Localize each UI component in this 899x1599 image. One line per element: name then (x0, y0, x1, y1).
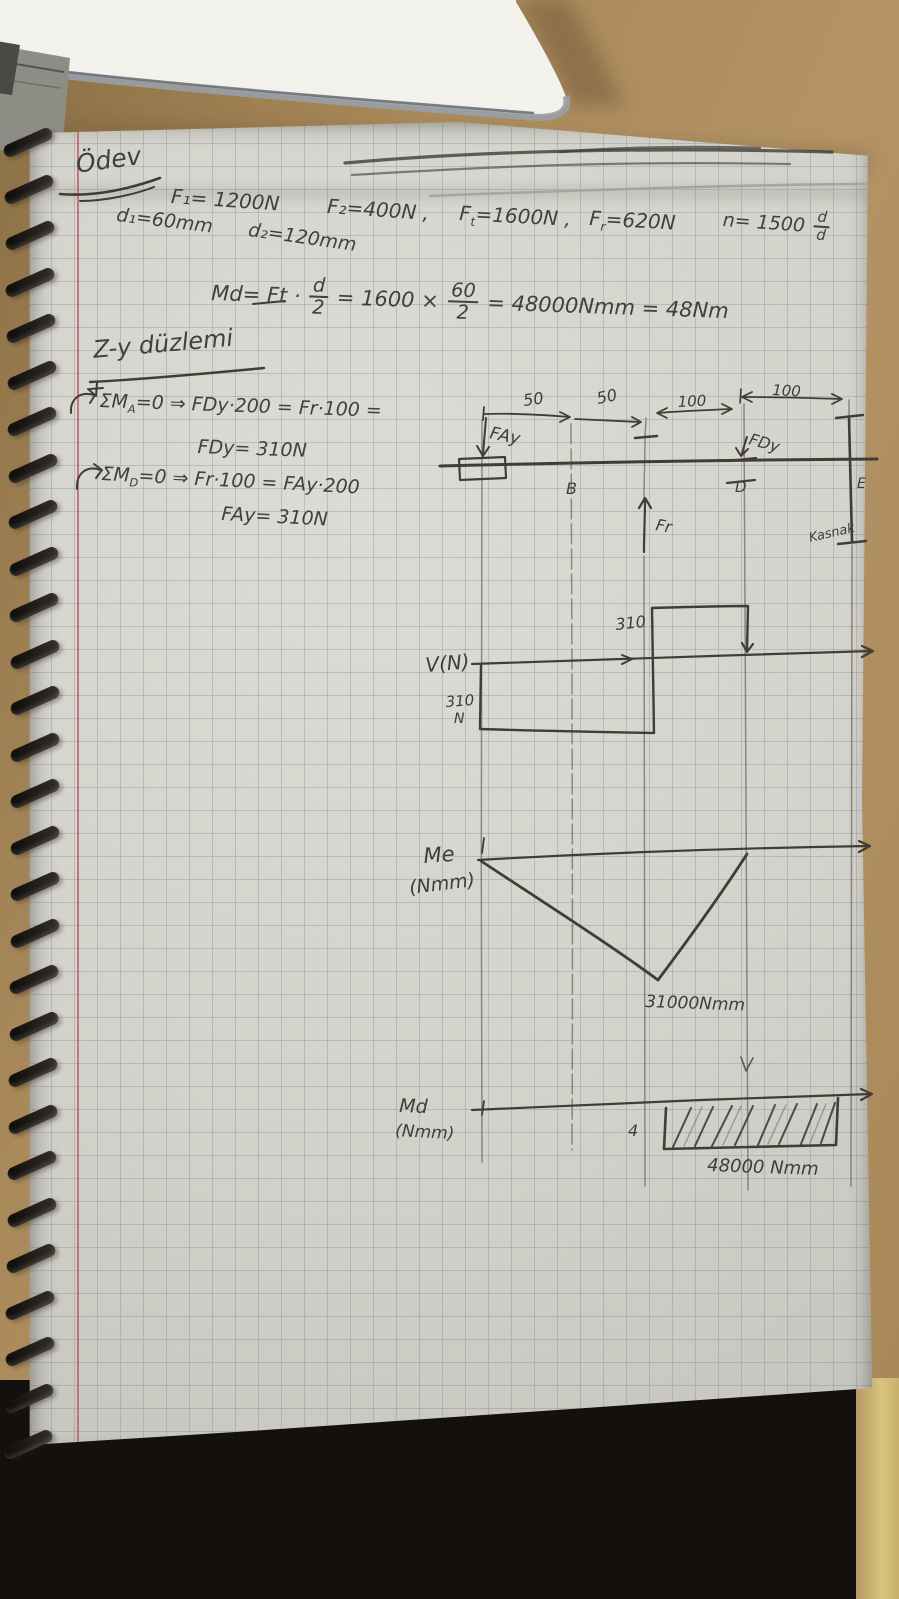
me-triangle (481, 854, 747, 980)
torque-block (664, 1098, 838, 1149)
fr-label: Fr (654, 515, 674, 537)
moment-a-result: FDy= 310N (197, 436, 307, 462)
point-d-label: D (735, 478, 747, 496)
fdy-label: FDy (747, 430, 783, 457)
md-axis (472, 1094, 871, 1110)
dim-50-1: 50 (522, 388, 545, 410)
fay-arrow (483, 418, 486, 454)
md-axis-unit: (Nmm) (395, 1121, 455, 1144)
point-e-label: E (857, 476, 866, 492)
given-fr: Fr=620N (589, 206, 677, 237)
v-axis-label: V(N) (424, 649, 470, 677)
moment-sense-symbol-a (71, 383, 103, 413)
point-b-label: B (566, 479, 577, 498)
dim-line-2 (575, 419, 640, 422)
fr-arrow (644, 500, 645, 552)
me-axis-label: Me (423, 842, 456, 868)
me-peak-label: 31000Nmm (645, 992, 746, 1015)
dim-100-1: 100 (677, 392, 707, 411)
me-axis-unit: (Nmm) (408, 869, 476, 899)
shear-diagram (472, 606, 873, 733)
section-underline (90, 368, 264, 382)
given-ft: Ft=1600N , (459, 201, 572, 234)
dim-50-2: 50 (595, 385, 619, 408)
c-tick (635, 436, 657, 438)
me-axis (478, 846, 869, 860)
hand-drawn-diagrams: FAy 50 50 100 100 B Fr FDy D E Kasnak V(… (0, 0, 899, 1599)
dim-line-1 (484, 414, 569, 417)
speed-fraction: dd (813, 209, 831, 244)
photo-of-notebook-page: { "colors":{"desk":"#a9895a","white_obje… (0, 0, 899, 1599)
v-shape (480, 606, 748, 733)
md-lead-digit: 4 (628, 1121, 638, 1140)
torque-diagram (472, 1089, 872, 1149)
title-underline (60, 178, 160, 201)
bending-moment-diagram (478, 838, 870, 1071)
v-negative-label: 310 (445, 691, 475, 711)
md-axis-label: Md (399, 1095, 429, 1118)
v-positive-label: 310 (614, 612, 646, 634)
diagram-labels: FAy 50 50 100 100 B Fr FDy D E Kasnak V(… (395, 381, 866, 1180)
dim-100-2: 100 (772, 381, 802, 400)
moment-sense-symbol-d (77, 464, 102, 489)
v-negative-unit: N (454, 711, 465, 727)
top-scribbles (345, 147, 866, 196)
fay-label: FAy (488, 423, 523, 449)
fraction-d-2: d2 (309, 275, 329, 318)
md-value-label: 48000 Nmm (707, 1155, 819, 1180)
fraction-60-2: 602 (447, 280, 479, 324)
v-axis (472, 651, 872, 664)
